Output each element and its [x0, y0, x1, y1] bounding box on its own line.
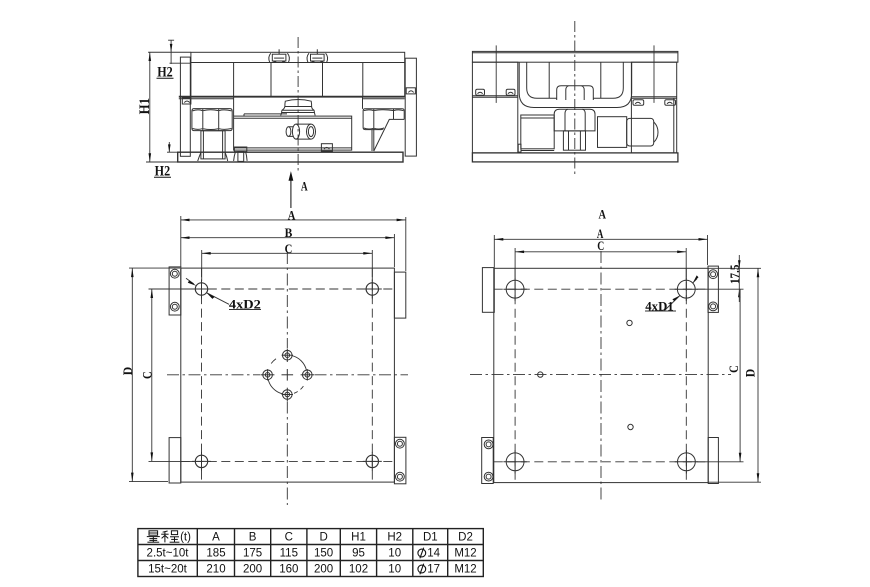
svg-text:H1: H1	[137, 98, 153, 114]
svg-text:C: C	[139, 371, 154, 379]
svg-text:C: C	[285, 241, 293, 256]
svg-text:D: D	[319, 532, 327, 544]
svg-text:10: 10	[388, 548, 401, 560]
svg-text:14: 14	[427, 548, 440, 560]
svg-text:4xD1: 4xD1	[645, 299, 673, 314]
svg-text:175: 175	[243, 548, 262, 560]
svg-text:B: B	[249, 532, 257, 544]
svg-text:C: C	[285, 532, 293, 544]
svg-text:D1: D1	[423, 532, 438, 544]
svg-text:D: D	[120, 367, 135, 375]
svg-text:B: B	[285, 225, 293, 240]
svg-text:17: 17	[427, 564, 440, 576]
svg-text:200: 200	[243, 564, 262, 576]
svg-text:150: 150	[314, 548, 333, 560]
svg-text:4xD2: 4xD2	[229, 297, 261, 312]
svg-text:C: C	[597, 238, 604, 253]
svg-text:2.5t~10t: 2.5t~10t	[147, 548, 190, 560]
svg-text:A: A	[301, 179, 308, 194]
svg-text:102: 102	[349, 564, 368, 576]
svg-text:H2: H2	[387, 532, 402, 544]
svg-text:115: 115	[280, 548, 298, 560]
svg-text:15t~20t: 15t~20t	[148, 564, 187, 576]
svg-text:10: 10	[388, 564, 401, 576]
svg-text:200: 200	[314, 564, 333, 576]
svg-text:17.5: 17.5	[727, 264, 742, 284]
svg-text:D: D	[742, 369, 757, 377]
svg-text:A: A	[599, 206, 607, 221]
svg-text:160: 160	[279, 564, 298, 576]
svg-text:D2: D2	[458, 532, 473, 544]
svg-text:M12: M12	[454, 564, 476, 576]
svg-text:(t): (t)	[180, 532, 191, 544]
svg-text:M12: M12	[454, 548, 476, 560]
svg-text:A: A	[288, 207, 296, 222]
svg-text:C: C	[726, 365, 741, 373]
svg-text:95: 95	[352, 548, 365, 560]
svg-text:185: 185	[206, 548, 225, 560]
svg-text:210: 210	[206, 564, 225, 576]
svg-text:H1: H1	[351, 532, 366, 544]
svg-text:A: A	[212, 532, 220, 544]
